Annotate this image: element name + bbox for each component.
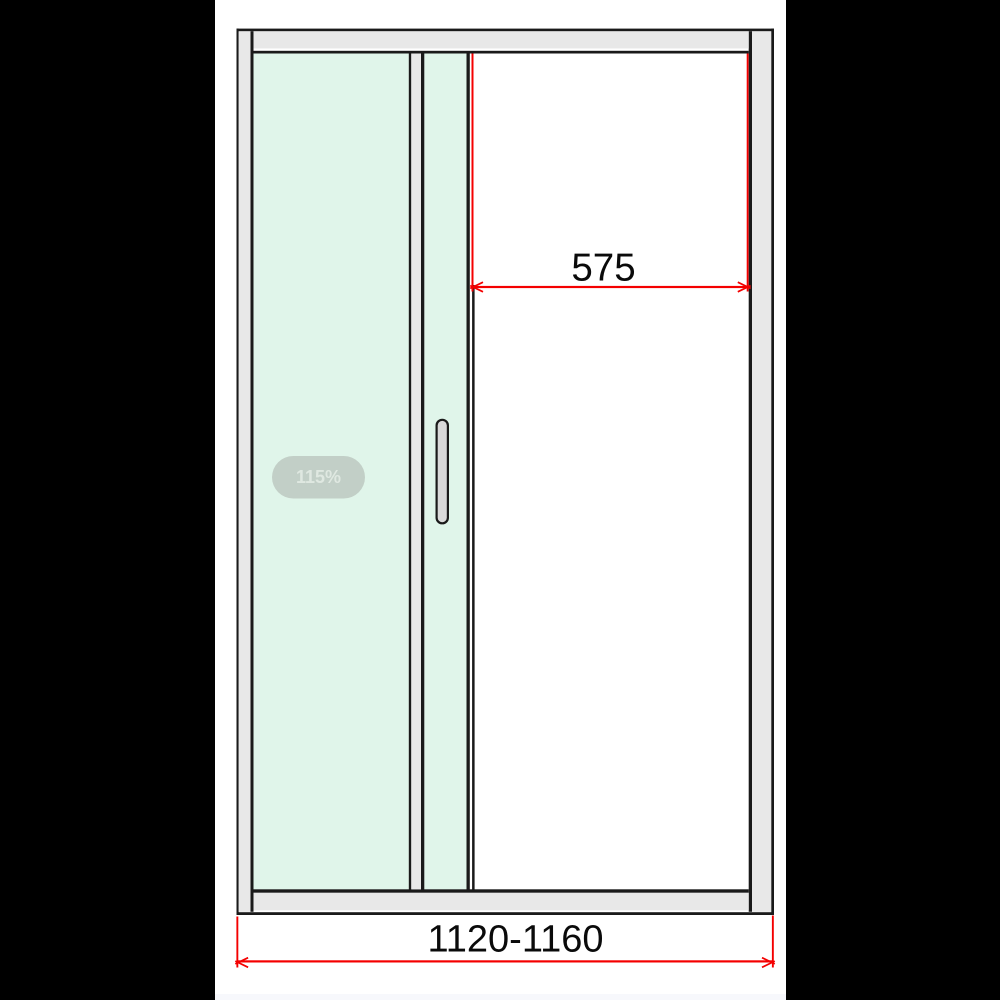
svg-text:575: 575	[571, 247, 635, 290]
svg-text:115%: 115%	[296, 467, 341, 487]
svg-text:1120-1160: 1120-1160	[427, 919, 603, 961]
